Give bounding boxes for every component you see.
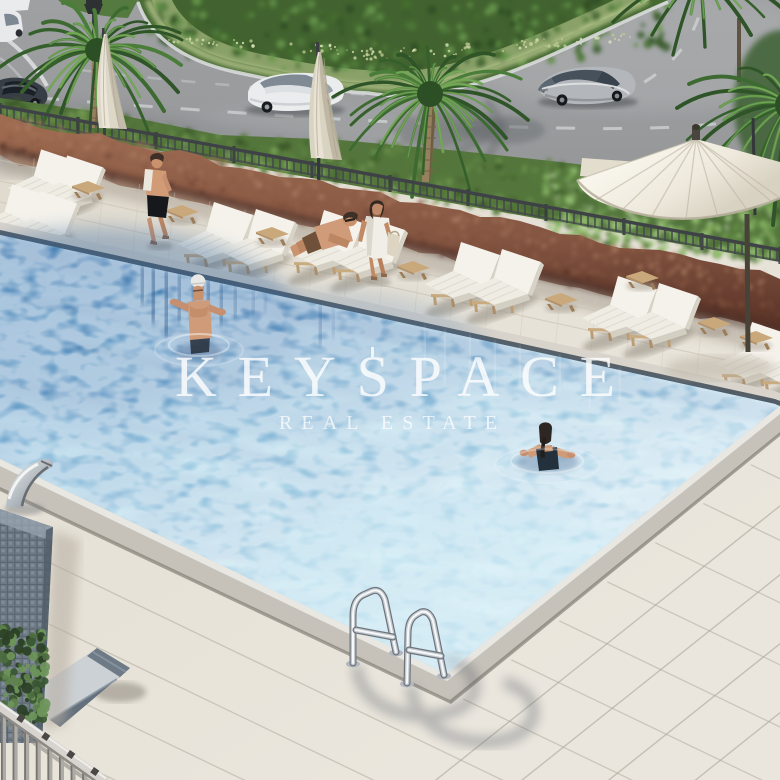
svg-text:REAL ESTATE: REAL ESTATE <box>279 412 497 434</box>
